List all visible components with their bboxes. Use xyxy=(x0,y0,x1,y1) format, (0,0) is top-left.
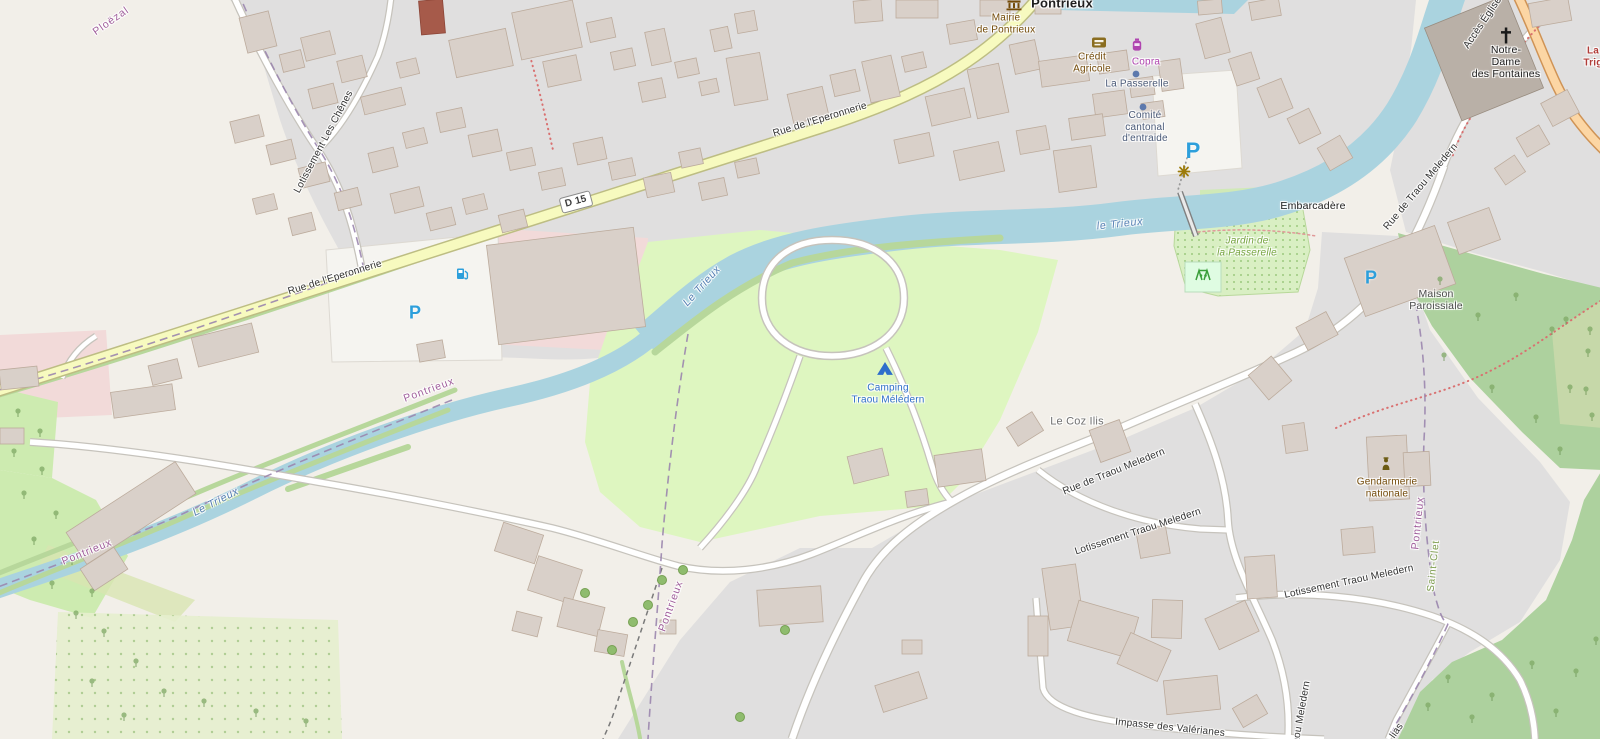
map-canvas[interactable] xyxy=(0,0,1600,739)
map-viewport[interactable]: PontrieuxMairie de PontrieuxCrédit Agric… xyxy=(0,0,1600,739)
